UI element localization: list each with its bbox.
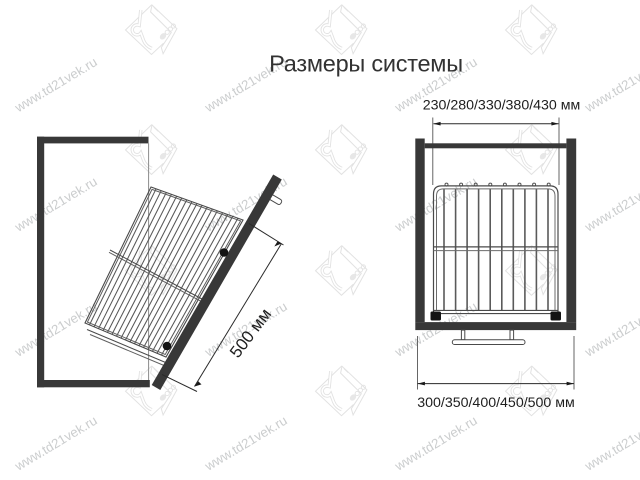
- svg-text:230/280/330/380/430 мм: 230/280/330/380/430 мм: [423, 97, 581, 113]
- svg-text:Размеры системы: Размеры системы: [269, 51, 463, 77]
- svg-text:300/350/400/450/500 мм: 300/350/400/450/500 мм: [417, 395, 575, 411]
